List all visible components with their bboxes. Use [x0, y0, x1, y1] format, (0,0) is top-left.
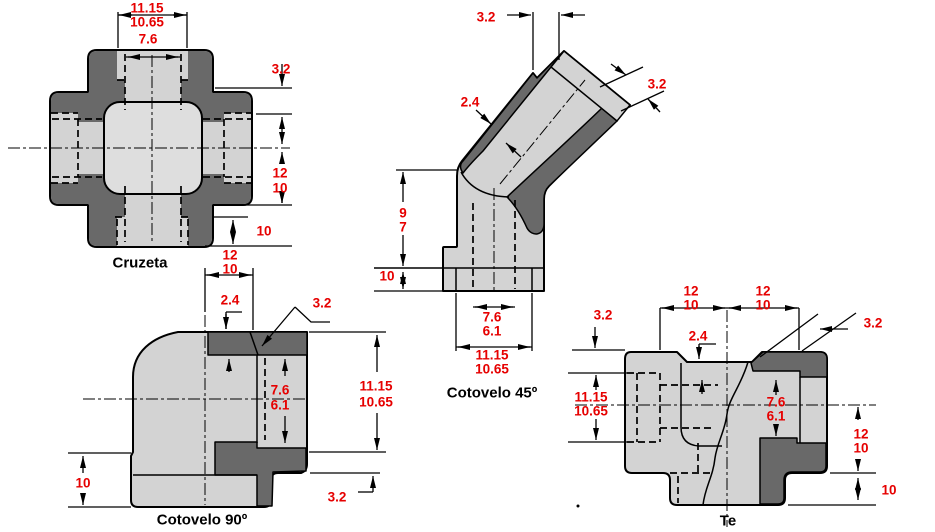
dim-cruzeta-center-max: 12	[272, 166, 287, 180]
dim-te-bore-min: 6.1	[767, 409, 786, 423]
caption-cruzeta: Cruzeta	[112, 256, 167, 271]
dim-te-chamfer: 3.2	[864, 316, 883, 330]
dim-te-left-max: 12	[683, 284, 698, 298]
dim-te-left-min: 10	[683, 298, 698, 312]
dim-cruzeta-outer-max: 11.15	[130, 1, 163, 15]
dim-cruzeta-center-min: 10	[272, 181, 287, 195]
dim-te-step: 2.4	[689, 329, 708, 343]
cotovelo45-drawing	[374, 12, 664, 351]
dim-te-socket-min: 10.65	[574, 404, 608, 418]
cruzeta-drawing	[8, 12, 292, 247]
dim-cot45-socket-min: 10.65	[475, 362, 509, 376]
cotovelo90-body	[131, 332, 307, 507]
dim-te-depth: 10	[881, 483, 896, 497]
dim-cot45-base: 10	[379, 269, 394, 283]
dim-te-bore-max: 7.6	[767, 395, 786, 409]
dim-cot45-bore-max: 7.6	[483, 310, 502, 324]
dim-cot45-height-max: 9	[399, 206, 407, 220]
te-body	[625, 352, 827, 505]
dim-cot90-socket-max: 11.15	[359, 379, 392, 393]
dim-cruzeta-depth: 10	[256, 224, 271, 238]
dim-cot90-step: 2.4	[221, 293, 240, 307]
stray-dot	[577, 505, 580, 508]
dim-cot90-base: 10	[75, 476, 90, 490]
dim-te-side-min: 10	[853, 441, 868, 455]
dim-te-side-max: 12	[853, 427, 868, 441]
dim-cot90-top-min: 10	[222, 262, 237, 276]
caption-cotovelo45: Cotovelo 45º	[447, 386, 538, 401]
dim-cot90-top-max: 12	[222, 248, 237, 262]
dim-cot90-chamfer: 3.2	[313, 296, 332, 310]
dim-te-socket-max: 11.15	[574, 390, 607, 404]
dim-cot45-end-wall: 3.2	[648, 77, 667, 91]
caption-cotovelo90: Cotovelo 90º	[157, 513, 248, 528]
dim-te-wall: 3.2	[594, 308, 613, 322]
dim-cot45-wall: 2.4	[461, 95, 480, 109]
dim-cruzeta-wall: 3.2	[272, 62, 291, 76]
dim-cot45-bore-min: 6.1	[483, 324, 502, 338]
dim-cot90-bore-min: 6.1	[271, 398, 290, 412]
dim-te-right-max: 12	[755, 284, 770, 298]
dim-cruzeta-bore: 7.6	[139, 32, 158, 46]
dim-cot45-socket-max: 11.15	[475, 348, 508, 362]
dim-cot90-bottom-wall: 3.2	[328, 490, 347, 504]
te-drawing	[568, 308, 876, 527]
pipe-fittings-drawing-sheet: 11.15 10.65 7.6 3.2 12 10 10 12 10 2.4 3…	[0, 0, 935, 532]
dim-cot90-socket-min: 10.65	[359, 395, 393, 409]
caption-te: Te	[720, 514, 736, 529]
dim-cot45-gap: 3.2	[477, 10, 496, 24]
dim-cruzeta-outer-min: 10.65	[130, 15, 164, 29]
dim-cot90-bore-max: 7.6	[271, 383, 290, 397]
dim-cot45-height-min: 7	[399, 220, 407, 234]
dim-te-right-min: 10	[755, 298, 770, 312]
